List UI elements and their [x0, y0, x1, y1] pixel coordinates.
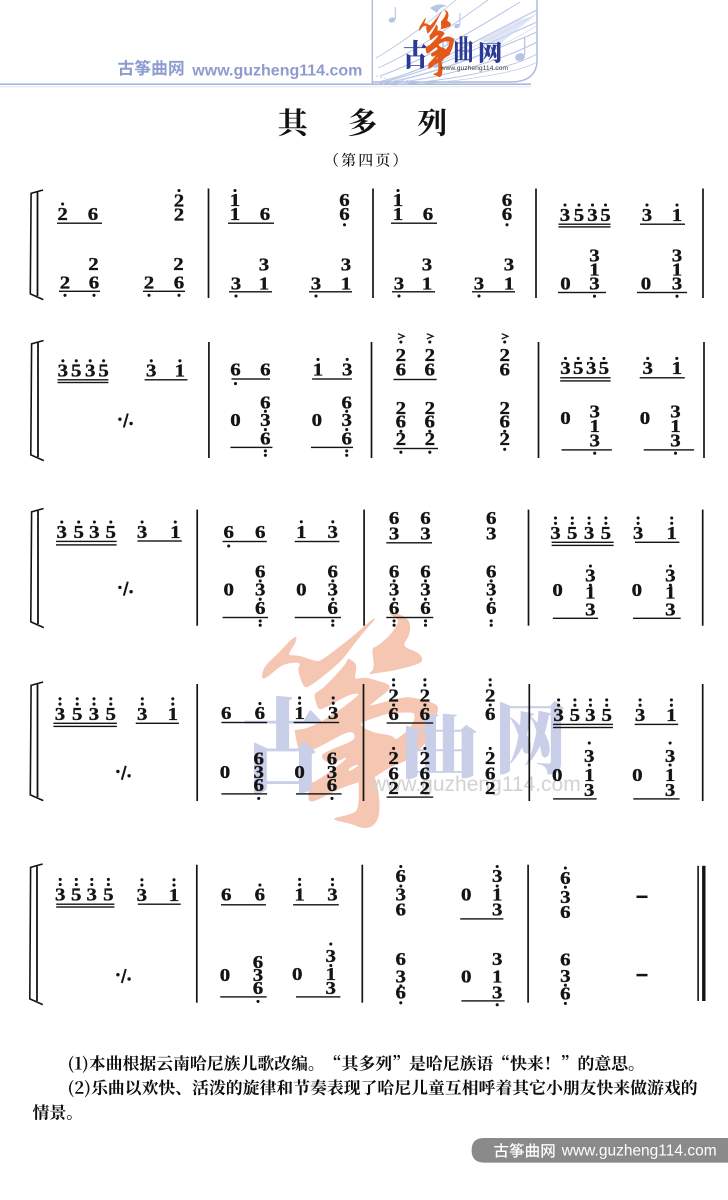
- svg-text:3: 3: [560, 967, 571, 986]
- svg-text:0: 0: [461, 886, 471, 905]
- svg-text:5: 5: [71, 886, 82, 905]
- svg-text:0: 0: [296, 581, 306, 600]
- svg-text:6: 6: [174, 274, 185, 293]
- svg-text:3: 3: [550, 524, 561, 543]
- svg-text:3: 3: [420, 581, 431, 600]
- svg-text:1: 1: [672, 206, 682, 225]
- svg-text:5: 5: [601, 524, 612, 543]
- svg-text:3: 3: [89, 523, 100, 542]
- svg-text:6: 6: [88, 205, 99, 224]
- svg-text:3: 3: [589, 432, 600, 451]
- svg-text:5: 5: [72, 705, 83, 724]
- svg-text:6: 6: [327, 776, 338, 795]
- svg-text:3: 3: [89, 705, 100, 724]
- svg-text:2: 2: [485, 779, 495, 798]
- svg-text:3: 3: [635, 706, 646, 725]
- svg-text:6: 6: [389, 563, 400, 582]
- svg-text:1: 1: [170, 523, 180, 542]
- svg-text:2: 2: [420, 779, 430, 798]
- svg-text:0: 0: [230, 411, 240, 430]
- svg-text:5: 5: [106, 523, 117, 542]
- svg-text:2: 2: [88, 255, 98, 274]
- svg-text:5: 5: [599, 359, 610, 378]
- svg-text:1: 1: [666, 706, 676, 725]
- svg-text:6: 6: [223, 523, 234, 542]
- svg-text:1: 1: [294, 886, 304, 905]
- svg-text:3: 3: [586, 359, 597, 378]
- svg-text:6: 6: [396, 361, 407, 380]
- svg-text:5: 5: [106, 705, 117, 724]
- svg-text:6: 6: [420, 563, 431, 582]
- svg-text:3: 3: [328, 523, 339, 542]
- svg-text:1: 1: [393, 205, 403, 224]
- svg-text:5: 5: [71, 362, 82, 381]
- svg-text:3: 3: [326, 979, 337, 998]
- svg-text:1: 1: [294, 704, 304, 723]
- svg-text:0: 0: [640, 409, 650, 428]
- svg-text:3: 3: [560, 206, 571, 225]
- svg-text:6: 6: [230, 361, 241, 380]
- svg-text:3: 3: [341, 256, 352, 275]
- svg-text:6: 6: [341, 430, 352, 449]
- svg-text:0: 0: [552, 581, 562, 600]
- svg-text:3: 3: [342, 361, 353, 380]
- svg-text:3: 3: [589, 275, 600, 294]
- svg-text:6: 6: [253, 776, 264, 795]
- svg-text:6: 6: [260, 205, 271, 224]
- svg-text:0: 0: [294, 763, 304, 782]
- svg-text:5: 5: [567, 524, 578, 543]
- svg-text:www.guzheng114.com: www.guzheng114.com: [561, 1142, 717, 1159]
- svg-text:3: 3: [57, 523, 68, 542]
- svg-text:2: 2: [420, 687, 430, 706]
- svg-text:6: 6: [89, 274, 100, 293]
- svg-text:3: 3: [260, 411, 271, 430]
- svg-text:6: 6: [486, 563, 497, 582]
- svg-text:3: 3: [560, 359, 571, 378]
- svg-text:2: 2: [396, 430, 406, 449]
- svg-text:6: 6: [255, 886, 266, 905]
- svg-text:3: 3: [492, 901, 503, 920]
- svg-text:3: 3: [665, 601, 676, 620]
- svg-text:3: 3: [137, 705, 148, 724]
- svg-text:2: 2: [388, 687, 398, 706]
- svg-text:6: 6: [328, 563, 339, 582]
- svg-text:3: 3: [492, 867, 503, 886]
- svg-text:3: 3: [504, 256, 515, 275]
- svg-text:1: 1: [296, 523, 306, 542]
- svg-text:3: 3: [55, 705, 66, 724]
- svg-text:6: 6: [260, 361, 271, 380]
- svg-text:3: 3: [389, 525, 400, 544]
- svg-text:6: 6: [423, 205, 434, 224]
- svg-text:6: 6: [485, 705, 496, 724]
- svg-text:6: 6: [260, 430, 271, 449]
- svg-text:6: 6: [255, 523, 266, 542]
- svg-text:3: 3: [328, 581, 339, 600]
- svg-text:1: 1: [313, 361, 323, 380]
- svg-text:3: 3: [422, 256, 433, 275]
- svg-text:6: 6: [255, 563, 266, 582]
- svg-text:2: 2: [144, 274, 154, 293]
- svg-text:www.guzheng114.com: www.guzheng114.com: [191, 63, 362, 80]
- svg-text:2: 2: [485, 687, 495, 706]
- svg-text:2: 2: [425, 430, 435, 449]
- svg-text:www.guzheng114.com: www.guzheng114.com: [370, 773, 581, 796]
- svg-text:3: 3: [327, 886, 338, 905]
- svg-text:6: 6: [255, 704, 266, 723]
- svg-text:2: 2: [499, 430, 509, 449]
- svg-text:0: 0: [312, 411, 322, 430]
- svg-text:5: 5: [601, 706, 612, 725]
- svg-text:5: 5: [574, 206, 585, 225]
- svg-text:0: 0: [220, 966, 230, 985]
- svg-text:3: 3: [85, 362, 96, 381]
- svg-text:5: 5: [573, 359, 584, 378]
- svg-text:1: 1: [168, 705, 178, 724]
- svg-text:3: 3: [328, 704, 339, 723]
- svg-text:3: 3: [137, 523, 148, 542]
- svg-text:6: 6: [396, 984, 407, 1003]
- svg-text:0: 0: [632, 581, 642, 600]
- svg-text:0: 0: [552, 766, 562, 785]
- svg-text:6: 6: [502, 205, 513, 224]
- svg-text:3: 3: [585, 706, 596, 725]
- svg-text:3: 3: [146, 362, 157, 381]
- svg-text:3: 3: [642, 359, 653, 378]
- svg-text:1: 1: [175, 362, 185, 381]
- svg-text:6: 6: [339, 205, 350, 224]
- svg-text:6: 6: [499, 361, 510, 380]
- svg-text:6: 6: [253, 979, 264, 998]
- svg-text:6: 6: [328, 599, 339, 618]
- svg-text:1: 1: [169, 886, 179, 905]
- svg-text:3: 3: [672, 275, 683, 294]
- svg-text:3: 3: [341, 411, 352, 430]
- svg-text:3: 3: [137, 886, 148, 905]
- svg-text:6: 6: [425, 361, 436, 380]
- svg-text:3: 3: [486, 525, 497, 544]
- svg-text:0: 0: [560, 275, 570, 294]
- svg-text:3: 3: [58, 362, 69, 381]
- svg-text:2: 2: [173, 255, 183, 274]
- svg-text:3: 3: [259, 256, 270, 275]
- svg-text:0: 0: [560, 409, 570, 428]
- svg-text:6: 6: [560, 985, 571, 1004]
- svg-text:1: 1: [666, 524, 676, 543]
- svg-text:6: 6: [389, 599, 400, 618]
- svg-text:5: 5: [98, 362, 109, 381]
- svg-text:0: 0: [641, 275, 651, 294]
- svg-text:6: 6: [221, 886, 232, 905]
- svg-text:3: 3: [670, 432, 681, 451]
- svg-text:2: 2: [388, 779, 398, 798]
- svg-text:3: 3: [665, 781, 676, 800]
- svg-text:1: 1: [672, 359, 682, 378]
- svg-text:3: 3: [486, 581, 497, 600]
- svg-text:3: 3: [585, 601, 596, 620]
- svg-text:5: 5: [570, 706, 581, 725]
- svg-text:3: 3: [492, 984, 503, 1003]
- svg-text:0: 0: [461, 968, 471, 987]
- svg-text:3: 3: [389, 581, 400, 600]
- svg-text:2: 2: [57, 205, 67, 224]
- svg-text:0: 0: [632, 766, 642, 785]
- svg-text:1: 1: [230, 205, 240, 224]
- svg-text:3: 3: [420, 525, 431, 544]
- svg-text:5: 5: [103, 886, 114, 905]
- svg-text:3: 3: [553, 706, 564, 725]
- svg-text:3: 3: [55, 886, 66, 905]
- svg-text:6: 6: [420, 705, 431, 724]
- svg-text:3: 3: [587, 206, 598, 225]
- svg-text:3: 3: [326, 947, 337, 966]
- svg-text:www.guzheng114.com: www.guzheng114.com: [440, 65, 509, 72]
- svg-text:5: 5: [600, 206, 611, 225]
- svg-text:6: 6: [560, 903, 571, 922]
- svg-text:3: 3: [584, 524, 595, 543]
- svg-text:6: 6: [420, 599, 431, 618]
- svg-text:3: 3: [633, 524, 644, 543]
- svg-text:2: 2: [60, 274, 70, 293]
- svg-text:6: 6: [388, 705, 399, 724]
- svg-text:0: 0: [292, 965, 302, 984]
- svg-text:0: 0: [223, 581, 233, 600]
- svg-text:0: 0: [220, 763, 230, 782]
- svg-text:6: 6: [255, 599, 266, 618]
- svg-text:5: 5: [73, 523, 84, 542]
- svg-text:6: 6: [486, 599, 497, 618]
- svg-text:3: 3: [87, 886, 98, 905]
- svg-text:6: 6: [396, 901, 407, 920]
- svg-text:3: 3: [255, 581, 266, 600]
- svg-text:3: 3: [584, 781, 595, 800]
- svg-text:2: 2: [174, 206, 184, 225]
- svg-text:6: 6: [221, 704, 232, 723]
- svg-text:6: 6: [396, 867, 407, 886]
- svg-text:3: 3: [642, 206, 653, 225]
